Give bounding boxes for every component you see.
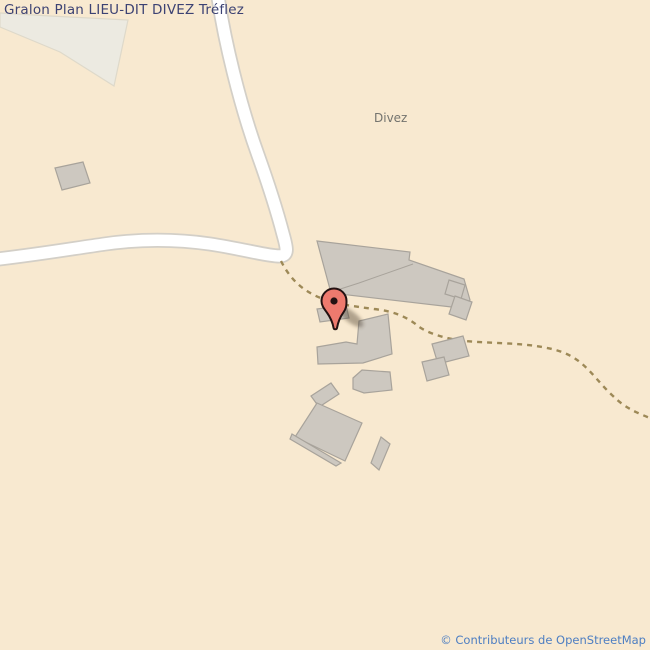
building-mid-south — [353, 370, 392, 393]
place-label-divez: Divez — [374, 111, 407, 125]
map-tiles-layer — [0, 0, 650, 650]
map-background — [0, 0, 650, 650]
page-title: Gralon Plan LIEU-DIT DIVEZ Tréflez — [4, 2, 244, 18]
marker-center-dot — [330, 297, 337, 304]
osm-attribution-link[interactable]: © Contributeurs de OpenStreetMap — [440, 633, 646, 647]
map-canvas[interactable]: Gralon Plan LIEU-DIT DIVEZ Tréflez Divez… — [0, 0, 650, 650]
